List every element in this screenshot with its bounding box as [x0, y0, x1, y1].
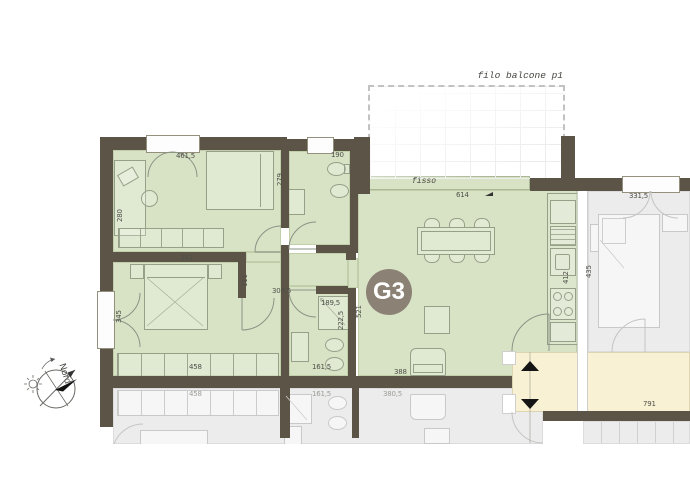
window-bathroom	[307, 137, 334, 154]
sun-icon	[24, 375, 42, 393]
lower-bidet	[328, 416, 347, 430]
nightstand	[208, 264, 222, 279]
wall-segment	[281, 245, 289, 378]
armchair-seat	[413, 364, 443, 373]
wall-segment	[346, 245, 356, 260]
neighbor-nightstand	[590, 224, 599, 252]
dim-shower-width: 189,5	[321, 300, 340, 307]
bed-headboard-line	[147, 277, 205, 278]
desk-chair	[141, 190, 158, 207]
fixed-glazing-label: fisso	[412, 177, 436, 186]
dim-bath2-width: 161,5	[312, 364, 331, 371]
toilet	[325, 338, 344, 352]
burner	[553, 307, 562, 316]
wall-segment	[100, 137, 148, 150]
dim-living-depth: 521	[356, 305, 363, 318]
dim-lower-living-width: 380,5	[383, 391, 402, 398]
dim-glazing-width: 614	[456, 192, 469, 199]
dining-table	[417, 227, 495, 255]
wall-segment	[316, 286, 348, 294]
wall-corridor	[543, 411, 690, 421]
window-studio	[146, 135, 200, 153]
wall-segment	[348, 288, 356, 378]
washbasin	[287, 189, 305, 215]
compass-label: Nord	[57, 363, 70, 385]
wall-segment	[352, 388, 359, 438]
hallway	[289, 253, 348, 286]
dim-kitchen-depth: 412	[563, 271, 570, 284]
wall-segment	[561, 136, 575, 182]
fridge	[550, 200, 576, 224]
hallway-link	[246, 252, 281, 262]
window-bedroom	[97, 291, 115, 349]
burner	[564, 307, 573, 316]
bed-pillow-line	[260, 154, 261, 207]
balcony-label: filo balcone p1	[430, 70, 563, 81]
dim-hall-wall: 111	[242, 274, 249, 287]
washbasin	[291, 332, 309, 362]
window-neighbor	[622, 176, 680, 193]
bed-studio	[206, 151, 274, 210]
neighbor-nightstand	[662, 214, 688, 232]
nightstand	[130, 264, 144, 279]
dim-bedroom-window: 345	[116, 310, 123, 323]
lower-bed	[140, 430, 208, 445]
dim-room1-depth: 280	[117, 209, 124, 222]
unit-badge: G3	[366, 269, 412, 315]
dim-lower-bath-width: 161,5	[312, 391, 331, 398]
kitchen-vent	[550, 226, 576, 246]
wall-segment	[281, 150, 289, 228]
wall-party	[100, 376, 512, 388]
door-jamb	[502, 394, 516, 414]
dim-bath1-width: 190	[331, 152, 344, 159]
sink-basin	[555, 254, 570, 270]
dim-lower-wardrobe: 458	[189, 391, 202, 398]
wall-segment	[280, 388, 290, 438]
burner	[564, 292, 573, 301]
wall-segment	[577, 190, 588, 413]
dim-neighbor-window: 331,5	[629, 193, 648, 200]
balcony-area	[368, 85, 565, 179]
lower-armchair	[410, 394, 446, 420]
chair	[424, 218, 440, 227]
corridor	[512, 352, 690, 412]
door-jamb	[502, 351, 516, 365]
dim-bedroom-wall: 341	[180, 255, 193, 262]
bed-double	[144, 264, 208, 330]
plan-crop-mask	[0, 444, 690, 500]
kitchen-cabinet	[550, 322, 576, 342]
wall-segment	[100, 137, 113, 295]
armchair	[410, 348, 446, 376]
dim-wardrobe: 458	[189, 364, 202, 371]
dim-hallway-width: 307,5	[272, 288, 291, 295]
wall-segment	[112, 252, 246, 262]
chair	[474, 218, 490, 227]
wall-segment	[350, 150, 358, 253]
dim-neighbor-bed-depth: 435	[586, 265, 593, 278]
dining-table-top	[421, 231, 491, 251]
neighbor-bed	[598, 214, 660, 328]
neighbor-wardrobe-strip	[583, 421, 690, 444]
stove	[550, 288, 576, 320]
burner	[553, 292, 562, 301]
dim-bath2-depth: 222,5	[338, 311, 345, 330]
wall-segment	[530, 178, 623, 191]
lower-toilet	[328, 396, 347, 410]
dim-living-width: 388	[394, 369, 407, 376]
chair	[449, 218, 465, 227]
side-table	[424, 306, 450, 334]
hallway-passage	[348, 258, 358, 288]
bidet	[330, 184, 349, 198]
sun-path-arc	[42, 359, 55, 369]
dim-room1-width: 461,5	[176, 153, 195, 160]
dim-corridor-length: 791	[643, 401, 656, 408]
lower-side-table	[424, 428, 450, 444]
sun-path-arrowhead	[50, 358, 55, 363]
wall-segment	[197, 137, 287, 150]
dim-bath1-depth: 279	[277, 173, 284, 186]
wall-segment	[316, 245, 350, 253]
floor-plan: filo balcone p1	[0, 0, 690, 500]
sofa-studio	[118, 228, 224, 248]
neighbor-pillow	[602, 218, 626, 244]
